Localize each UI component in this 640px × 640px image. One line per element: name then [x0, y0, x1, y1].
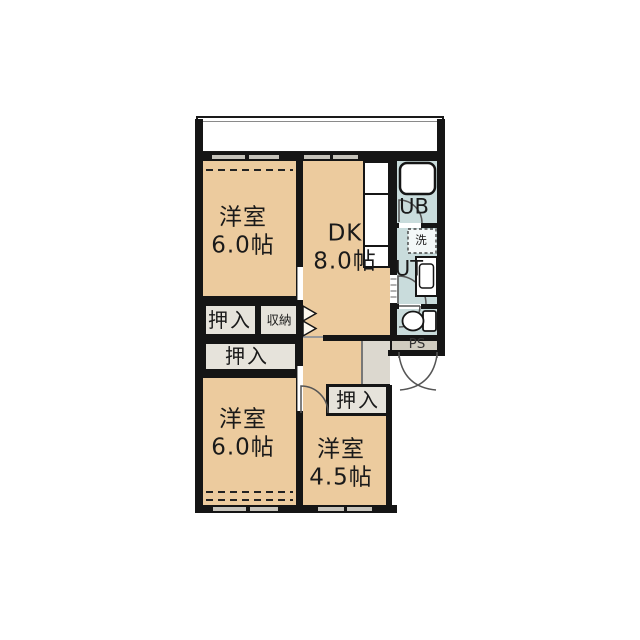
floorplan-canvas: 洋室 6.0帖 DK 8.0帖 洋室 6.0帖 洋室 4.5帖 押入 収納 押入…	[0, 0, 640, 640]
door-arc-bedroom-small	[301, 386, 328, 413]
closet-label: 押入	[336, 388, 380, 412]
bifold-door-icon	[303, 306, 316, 336]
unit-bath-label: UB	[399, 194, 429, 219]
entrance-door-arc	[399, 352, 437, 390]
room-size-label: 4.5帖	[309, 464, 373, 492]
room-size-label: 8.0帖	[313, 248, 377, 276]
room-size-label: 6.0帖	[211, 434, 275, 462]
bathtub-icon	[400, 163, 435, 194]
room-name-label: DK	[313, 220, 377, 248]
room-size-label: 6.0帖	[211, 232, 275, 260]
washer-label: 洗	[415, 234, 427, 248]
closet-label: 押入	[225, 344, 269, 368]
room-name-label: 洋室	[211, 204, 275, 232]
closet-label: 押入	[208, 308, 252, 332]
room-name-label: 洋室	[211, 406, 275, 434]
toilet-icon	[403, 311, 437, 331]
storage-label: 収納	[266, 313, 291, 328]
room-label-bedroom-left: 洋室 6.0帖	[211, 406, 275, 461]
room-name-label: 洋室	[309, 436, 373, 464]
plan-annotations	[0, 0, 640, 640]
pipe-space-label: PS	[409, 336, 426, 352]
room-label-bedroom-small: 洋室 4.5帖	[309, 436, 373, 491]
opening-hatch-marks	[391, 279, 397, 297]
room-label-bedroom-top: 洋室 6.0帖	[211, 204, 275, 259]
room-label-dk: DK 8.0帖	[313, 220, 377, 275]
utility-label: UT	[395, 256, 423, 281]
